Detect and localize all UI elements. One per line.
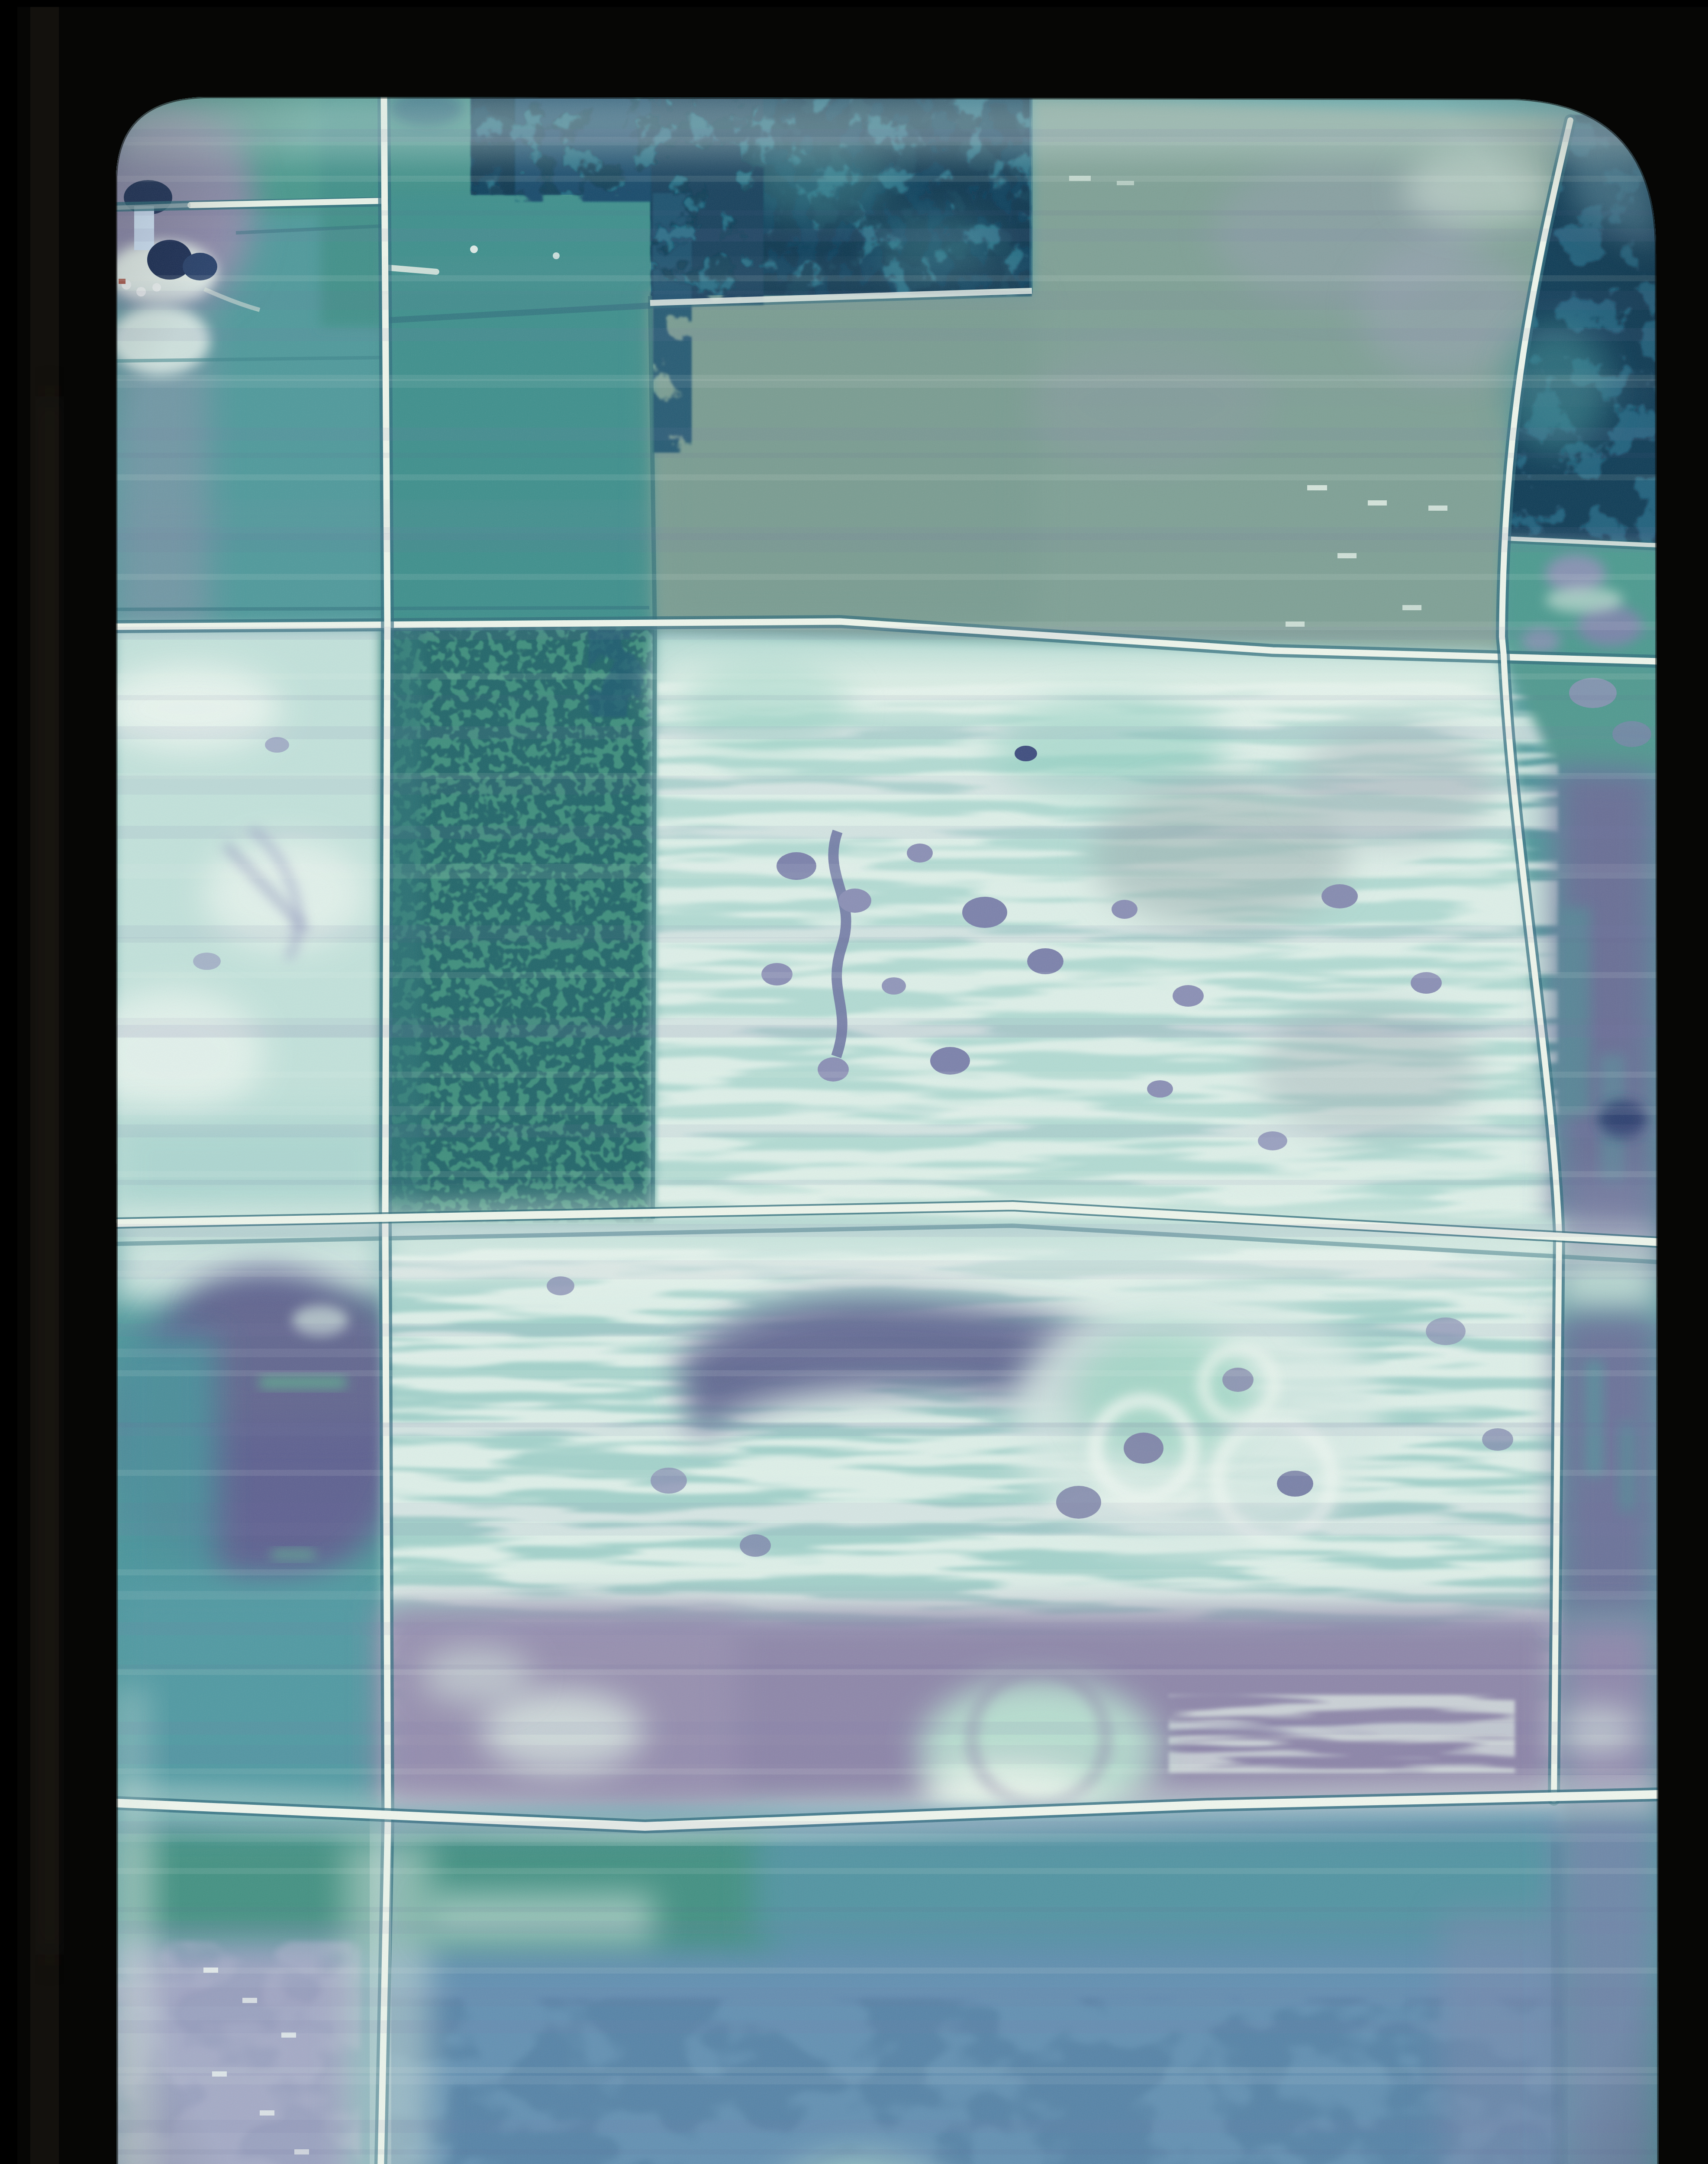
mount-left-strip-glow (43, 396, 56, 1955)
aerial-photo-svg (17, 7, 1708, 2164)
scanned-slide (17, 7, 1708, 2164)
photo-content (80, 85, 1660, 2164)
film-grain-overlay (113, 85, 1660, 2164)
